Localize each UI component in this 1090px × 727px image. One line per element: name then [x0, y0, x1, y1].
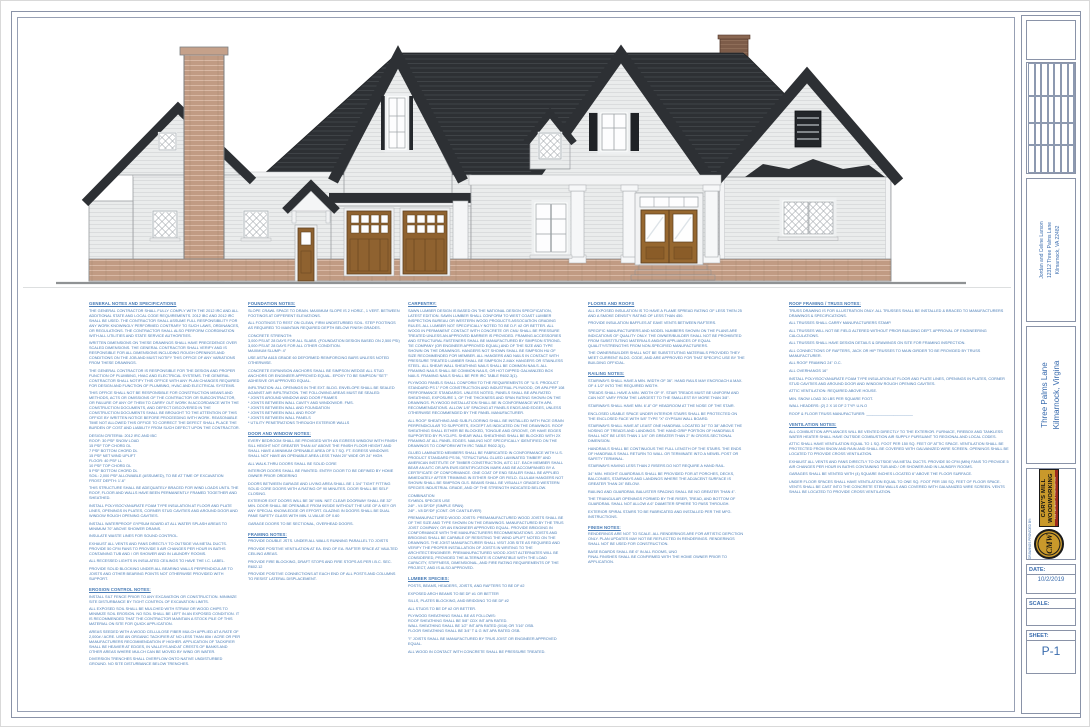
notes-column-1: GENERAL NOTES AND SPECIFICATIONSTHE GENE…: [89, 301, 241, 670]
date-value: 10/2/2019: [1027, 575, 1075, 583]
note-paragraph: ALL OVERHANGS 16": [789, 369, 1013, 374]
revision-empty-cell: [1054, 146, 1061, 174]
revision-empty-cell: [1028, 96, 1035, 124]
revision-empty-cell: [1068, 124, 1075, 146]
note-paragraph: TRUSS DRAWING IS FOR ILLUSTRATION ONLY. …: [789, 309, 1013, 319]
revision-empty-cell: [1048, 96, 1055, 124]
note-paragraph: BASE BOARDS SHALL BE 6" IN ALL ROOMS, UN…: [588, 550, 745, 565]
project-title-box: Three Palms Lane Kilmarnock, Virgina: [1026, 326, 1076, 464]
note-paragraph: HANDRAILS SHALL BE CONTINUOUS THE FULL L…: [588, 447, 745, 462]
owner-info-box: Jordan and Celine Larson 12312 Three Pal…: [1026, 178, 1076, 322]
stamp-box: [1026, 20, 1076, 60]
note-paragraph: PLYWOOD PANELS SHALL CONFORM TO THE REQU…: [408, 381, 565, 416]
note-paragraph: ENCLOSED USABLE SPACE UNDER INTERIOR STA…: [588, 412, 745, 422]
revision-column-header: REVISED BY: [1074, 96, 1076, 124]
note-paragraph: ALL WOOD IN CONTACT WITH CONCRETE SHALL …: [408, 650, 565, 655]
owner-name: Jordan and Celine Larson: [1039, 221, 1047, 278]
note-paragraph: ALL ROOF SHEATHING AND SUB-FLOORING SHAL…: [408, 419, 565, 449]
note-paragraph: STAIRWAYS SHALL HAVE A MIN. WIDTH OF 36"…: [588, 379, 745, 389]
note-section-heading: FRAMING NOTES:: [248, 532, 400, 537]
note-paragraph: TREADS SHALL HAVE A MIN. WIDTH OF 9". ST…: [588, 391, 745, 401]
revision-empty-cell: [1041, 146, 1048, 174]
revision-empty-cell: [1061, 146, 1068, 174]
revision-empty-cell: [1054, 96, 1061, 124]
note-paragraph: ALL EXPOSED INSULATION IS TO HAVE A FLAM…: [588, 309, 745, 319]
note-paragraph: PREMANUFACTURED WOOD JOISTS: PREMANUFACT…: [408, 516, 565, 571]
note-paragraph: SAWN LUMBER DESIGN IS BASED ON THE NATIO…: [408, 309, 565, 379]
logo-line1: CARY'S MILL: [1040, 470, 1048, 526]
note-paragraph: USE ASTM A615 GRADE 60 DEFORMED REINFORC…: [248, 356, 400, 366]
note-paragraph: ALL WALK-THRU DOORS SHALL BE SOLID CORE: [248, 462, 400, 467]
note-paragraph: INSULATE WASTE LINES FOR SOUND CONTROL.: [89, 534, 241, 539]
notes-section: GENERAL NOTES AND SPECIFICATIONSTHE GENE…: [1, 1, 1015, 727]
note-section-heading: EROSION CONTROL NOTES:: [89, 587, 241, 592]
revision-empty-cell: [1048, 146, 1055, 174]
logo-line2: WOODWORKING: [1047, 470, 1055, 526]
revision-column-header: DATE: [1074, 124, 1076, 146]
note-paragraph: INTERIOR DOORS SHALL BE PAINTED. ENTRY D…: [248, 469, 400, 479]
revision-column-header: DESCRIPTION: [1074, 63, 1076, 96]
note-paragraph: PLYWOOD SHEATHING SHALL BE AS FOLLOWS: R…: [408, 614, 565, 634]
note-paragraph: RAILING AND GUARDRAIL BALUSTER SPACING S…: [588, 490, 745, 495]
note-paragraph: GARAGE DOORS TO BE SECTIONAL, OVERHEAD D…: [248, 522, 400, 527]
note-paragraph: ALL EXPOSED SOIL SHALL BE MULCHED WITH S…: [89, 607, 241, 627]
note-paragraph: PROVIDE DOUBLE JSTS. UNDER ALL WALLS RUN…: [248, 539, 400, 544]
scale-box: SCALE:: [1026, 598, 1076, 626]
scale-label: SCALE:: [1027, 599, 1075, 609]
note-section-heading: DOOR AND WINDOW NOTES:: [248, 431, 400, 436]
note-paragraph: EXTERIOR EXIT DOORS WILL BE 36" MIN. NET…: [248, 499, 400, 519]
notes-column-2: FOUNDATION NOTES:SLOPE CRAWL SPACE TO DR…: [248, 301, 400, 585]
note-paragraph: INSTALL POLYISOCYANURATE FOAM TYPE INSUL…: [789, 377, 1013, 387]
note-paragraph: EVERY BEDROOM SHALL BE PROVIDED WITH AN …: [248, 439, 400, 459]
revision-empty-cell: [1035, 63, 1042, 96]
note-paragraph: THE GENERAL CONTRACTOR IS RESPONSIBLE FO…: [89, 369, 241, 389]
note-paragraph: POSTS, BEAMS, HEADERS, JOISTS, AND RAFTE…: [408, 584, 565, 589]
note-paragraph: PROVIDE INSULATION BAFFLES AT EAVE VENTS…: [588, 321, 745, 326]
provider-logo-box: DRAWINGS PROVIDED BY: CMW CARY'S MILL WO…: [1026, 468, 1076, 560]
note-paragraph: WRITTEN DIMENSIONS ON THESE DRAWINGS SHA…: [89, 341, 241, 366]
note-paragraph: GARAGES SHALL BE VENTED WITH (4) SQUARE …: [789, 472, 1013, 477]
note-paragraph: EXTERIOR SPIRAL STAIRS TO BE FABRICATED …: [588, 510, 745, 520]
revision-empty-cell: [1068, 146, 1075, 174]
revision-table: NUMBERDATEREVISED BYDESCRIPTIONREVISION …: [1026, 62, 1076, 174]
revision-empty-cell: [1048, 124, 1055, 146]
note-paragraph: THE TRIANGULAR OPENINGS FORMED BY THE RI…: [588, 497, 745, 507]
note-paragraph: DOORS BETWEEN GARAGE AND LIVING AREA SHA…: [248, 482, 400, 497]
revision-empty-cell: [1061, 96, 1068, 124]
note-paragraph: "I" JOISTS SHALL BE MANUFACTURED BY TRUS…: [408, 637, 565, 647]
note-paragraph: ALL FOOTINGS TO REST ON CLEAN, FIRM UNDI…: [248, 321, 400, 331]
note-section-heading: VENTILATION NOTES:: [789, 422, 1013, 427]
note-paragraph: SLOPE CRAWL SPACE TO DRAIN. MAXIMUM SLOP…: [248, 309, 400, 319]
note-paragraph: ALL RECESSED LIGHTS IN INSULATED CEILING…: [89, 559, 241, 564]
note-section-heading: GENERAL NOTES AND SPECIFICATIONS: [89, 301, 241, 306]
sheet-number: P-1: [1027, 641, 1075, 658]
note-paragraph: SILLS, PLATES BLOCKING, AND BRIDGING TO …: [408, 599, 565, 604]
note-section-heading: LUMBER SPECIES:: [408, 576, 565, 581]
revision-empty-cell: [1041, 96, 1048, 124]
note-paragraph: INFILTRATION: ALL OPENINGS IN THE EXT. B…: [248, 386, 400, 426]
note-paragraph: COMBINATION SYMBOL SPECIES USE 24F - V4 …: [408, 494, 565, 514]
scale-value: [1027, 609, 1075, 611]
plan-sheet: GENERAL NOTES AND SPECIFICATIONSTHE GENE…: [0, 0, 1090, 727]
project-name: Three Palms Lane: [1039, 362, 1051, 427]
note-paragraph: EXPOSED ARCH BEAMS TO BE DF #1 OR BETTER: [408, 592, 565, 597]
revision-empty-cell: [1048, 63, 1055, 96]
revision-empty-cell: [1028, 63, 1035, 96]
note-paragraph: ROOF & FLOOR TRUSS MANUFACTURER: _______…: [789, 412, 1013, 417]
note-paragraph: AREAS SEEDED WITH A WOOD CELLULOSE FIBER…: [89, 630, 241, 655]
logo-tagline: FINE CABINETRY & CONSTRUCTION: [1055, 470, 1058, 526]
revision-empty-cell: [1068, 96, 1075, 124]
note-paragraph: ATTIC SHALL HAVE VENTILATION EQUAL TO 1 …: [789, 442, 1013, 457]
note-paragraph: INSTALL WATERPROOF GYPSUM BOARD AT ALL W…: [89, 522, 241, 532]
note-section-heading: RAILING NOTES:: [588, 371, 745, 376]
note-paragraph: GLUED LAMINATED MEMBERS SHALL BE FABRICA…: [408, 451, 565, 491]
revision-empty-cell: [1054, 124, 1061, 146]
note-paragraph: ALL TRUSSES WILL NOT BE FIELD ALTERED WI…: [789, 329, 1013, 339]
note-section-heading: FOUNDATION NOTES:: [248, 301, 400, 306]
note-paragraph: DESIGN CRITERIA: 2012 IRC AND IBC ROOF: …: [89, 434, 241, 484]
note-paragraph: STAIRWAYS SHALL HAVE AT LEAST ONE HANDRA…: [588, 424, 745, 444]
note-paragraph: SPECIFIC MANUFACTURERS AND MODEL NUMBERS…: [588, 329, 745, 349]
company-logo: CMW CARY'S MILL WOODWORKING FINE CABINET…: [1034, 469, 1064, 559]
revision-empty-cell: [1061, 124, 1068, 146]
logo-monogram-icon: CMW: [1034, 529, 1064, 559]
note-paragraph: ATTIC VENTILATION: REQUIRED ABOVE HOUSE.: [789, 389, 1013, 394]
notes-column-5: ROOF FRAMING / TRUSS NOTES:TRUSS DRAWING…: [789, 301, 1013, 498]
note-paragraph: 34" MIN. HEIGHT GUARDRAILS SHALL BE PROV…: [588, 472, 745, 487]
note-paragraph: STAIRWAYS SHALL HAVE MIN. 6'-8" OF HEADR…: [588, 404, 745, 409]
note-paragraph: INSTALL POLYISOCYANURATE FOAM TYPE INSUL…: [89, 504, 241, 519]
revision-empty-cell: [1028, 124, 1035, 146]
note-paragraph: THIS STRUCTURE SHALL BE ADEQUATELY BRACE…: [89, 486, 241, 501]
project-location: Kilmarnock, Virgina: [1051, 361, 1063, 430]
notes-column-4: FLOORS AND ROOFSALL EXPOSED INSULATION I…: [588, 301, 745, 567]
note-paragraph: ALL CONNECTIONS OF RAFTERS, JACK OR HIP …: [789, 349, 1013, 359]
note-paragraph: PROVIDE FIRE BLOCKING, DRAFT STOPS AND F…: [248, 560, 400, 570]
note-section-heading: ROOF FRAMING / TRUSS NOTES:: [789, 301, 1013, 306]
note-paragraph: PROVIDE SOLID BLOCKING UNDER ALL BEARING…: [89, 567, 241, 582]
revision-empty-cell: [1041, 63, 1048, 96]
note-paragraph: THE GENERAL CONTRACTOR SHALL FULLY COMPL…: [89, 309, 241, 339]
revision-empty-cell: [1035, 124, 1042, 146]
revision-empty-cell: [1068, 63, 1075, 96]
note-paragraph: PROVIDE POSITIVE VENTILATION AT EA. END …: [248, 547, 400, 557]
note-paragraph: THE OWNER/BUILDER SHALL NOT BE SUBSTITUT…: [588, 351, 745, 366]
revision-grid: NUMBERDATEREVISED BYDESCRIPTIONREVISION …: [1028, 63, 1076, 173]
note-paragraph: ALL ROOF FRAMING 24" O.C.: [789, 361, 1013, 366]
note-paragraph: INSTALL SILT FENCE PRIOR TO ANY EXCAVATI…: [89, 595, 241, 605]
revision-column-header: NUMBER: [1074, 146, 1076, 174]
revision-empty-cell: [1035, 146, 1042, 174]
note-paragraph: THIS OFFICE SHALL NOT BE RESPONSIBLE FOR…: [89, 391, 241, 431]
revision-empty-cell: [1041, 124, 1048, 146]
owner-address: 12312 Three Palms Lane: [1047, 222, 1055, 278]
provider-label: DRAWINGS PROVIDED BY:: [1028, 469, 1032, 559]
sheet-box: SHEET: P-1: [1026, 630, 1076, 674]
date-label: DATE:: [1027, 565, 1075, 575]
note-paragraph: ALL STUDS TO BE DF #2 OR BETTER.: [408, 607, 565, 612]
note-section-heading: FINISH NOTES:: [588, 525, 745, 530]
notes-column-3: CARPENTRY:SAWN LUMBER DESIGN IS BASED ON…: [408, 301, 565, 657]
note-paragraph: CONCRETE EXPANSION ANCHORS SHALL BE SIMP…: [248, 369, 400, 384]
note-paragraph: CONCRETE STRENGTH: 3,000 PSI AT 28 DAYS …: [248, 334, 400, 354]
owner-city: Kilmarnock, VA 22482: [1055, 226, 1063, 275]
note-section-heading: FLOORS AND ROOFS: [588, 301, 745, 306]
note-paragraph: ALL TRUSSES SHALL HAVE DESIGN DETAILS & …: [789, 341, 1013, 346]
note-paragraph: RENDERINGS ARE NOT TO SCALE. ALL RENDERI…: [588, 532, 745, 547]
revision-empty-cell: [1061, 63, 1068, 96]
note-paragraph: EXHAUST ALL VENTS AND FANS DIRECTLY TO O…: [789, 460, 1013, 470]
date-box: DATE: 10/2/2019: [1026, 564, 1076, 594]
note-paragraph: EXHAUST ALL VENTS AND FANS DIRECTLY TO O…: [89, 542, 241, 557]
note-paragraph: ALL COMBUSTION APPLIANCES WILL BE VENTED…: [789, 430, 1013, 440]
revision-empty-cell: [1054, 63, 1061, 96]
note-paragraph: WALL HEADERS: (2) 2 X 10 DF 2 TYP. U.N.O: [789, 404, 1013, 409]
note-paragraph: STAIRWAYS HAVING LESS THAN 2 RISERS DO N…: [588, 464, 745, 469]
note-paragraph: PROVIDE POSITIVE CONNECTIONS AT EACH END…: [248, 572, 400, 582]
revision-empty-cell: [1035, 96, 1042, 124]
note-paragraph: DIVERSION TRENCHES SHALL OVERFLOW ONTO N…: [89, 657, 241, 667]
note-paragraph: MIN. SNOW LOAD 30 LBS PER SQUARE FOOT.: [789, 397, 1013, 402]
title-block: NUMBERDATEREVISED BYDESCRIPTIONREVISION …: [1021, 15, 1081, 714]
sheet-label: SHEET:: [1027, 631, 1075, 641]
note-section-heading: CARPENTRY:: [408, 301, 565, 306]
note-paragraph: UNDER FLOOR SPACES SHALL HAVE VENTILATIO…: [789, 480, 1013, 495]
note-paragraph: ALL TRUSSES SHALL CARRY MANUFACTURERS ST…: [789, 321, 1013, 326]
revision-empty-cell: [1028, 146, 1035, 174]
